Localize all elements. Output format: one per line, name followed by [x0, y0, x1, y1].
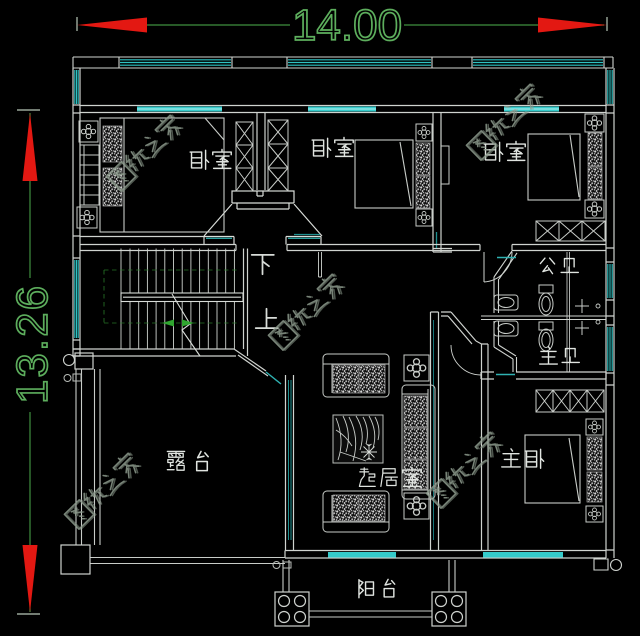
svg-text:13.26: 13.26	[8, 284, 57, 404]
svg-text:14.00: 14.00	[292, 1, 402, 50]
